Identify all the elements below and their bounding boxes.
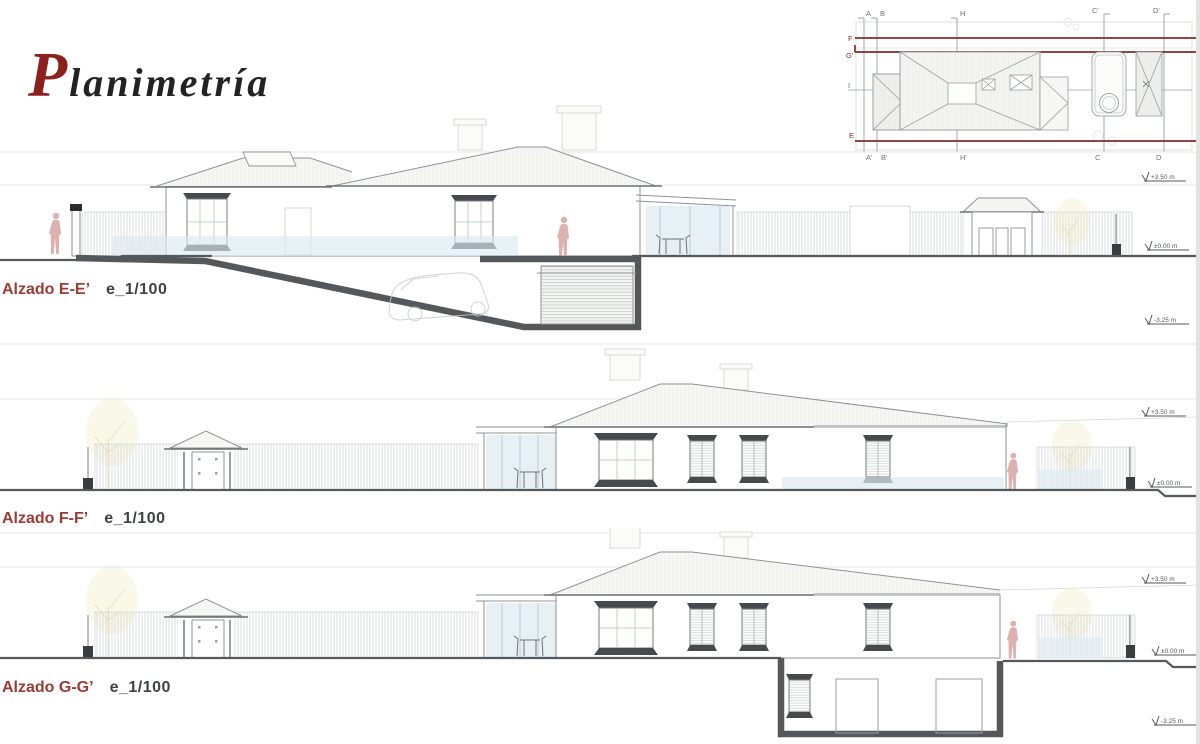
roof [544, 552, 1000, 595]
elevation-scale: e_1/100 [106, 281, 167, 298]
glass-band [112, 236, 518, 256]
car-sketch [389, 273, 489, 321]
glass-band [1038, 469, 1102, 490]
roofline-continuation [1006, 417, 1200, 422]
kp-label: I [848, 81, 850, 90]
svg-text:+3.50 m: +3.50 m [1151, 409, 1175, 416]
level-marker: ±0.00 m [1148, 478, 1192, 487]
window-shuttered [863, 603, 893, 651]
kp-label: C' [1092, 6, 1099, 15]
fence [95, 612, 478, 658]
elevation-name: Alzado F-F’ [2, 510, 88, 527]
kp-label: B [880, 9, 885, 18]
window-shuttered [739, 435, 769, 483]
window-shuttered [687, 603, 717, 651]
level-marker: +3.50 m [1142, 574, 1186, 583]
glass-band [1038, 637, 1102, 658]
kp-label: H [960, 9, 965, 18]
svg-text:+3.50 m: +3.50 m [1151, 576, 1175, 583]
basement-door [836, 679, 878, 733]
porch [636, 195, 736, 256]
plan-sheet: Planimetría [0, 0, 1200, 744]
basement-door [936, 679, 982, 733]
level-marker: ±0.00 m [1145, 241, 1189, 250]
svg-text:±0.00 m: ±0.00 m [1161, 648, 1184, 655]
roof [544, 384, 1008, 427]
svg-text:+3.50 m: +3.50 m [1151, 174, 1175, 181]
elevation-name: Alzado E-E’ [2, 281, 90, 298]
level-marker: ±0.00 m [1152, 646, 1196, 655]
person-figure [1007, 621, 1018, 659]
window-wide [594, 601, 658, 655]
basement-window [786, 674, 813, 718]
svg-text:-3.25 m: -3.25 m [1161, 718, 1183, 725]
svg-text:±0.00 m: ±0.00 m [1157, 480, 1180, 487]
window-shuttered [687, 435, 717, 483]
kp-label: A [866, 9, 871, 18]
lamp-post [83, 615, 93, 658]
garage-door [537, 266, 636, 324]
elevation-f-drawing: +3.50 m ±0.00 m [0, 338, 1200, 510]
kp-label: D' [1153, 6, 1160, 15]
person-figure [1007, 453, 1018, 491]
elevation-label-f: Alzado F-F’e_1/100 [2, 510, 166, 528]
level-marker: +3.50 m [1142, 172, 1186, 181]
window-shuttered [739, 603, 769, 651]
elevation-name: Alzado G-G’ [2, 679, 94, 696]
person-figure [49, 213, 61, 254]
window-shuttered [863, 435, 893, 483]
skylight [243, 152, 296, 166]
kp-label: F [848, 34, 853, 43]
level-marker: -3.25 m [1152, 716, 1196, 725]
elevation-e-drawing: +3.50 m ±0.00 m -3.25 m [0, 100, 1200, 335]
glass-band [782, 477, 1004, 490]
level-marker: +3.50 m [1142, 407, 1186, 416]
chimney [454, 106, 601, 150]
fence-gate [850, 206, 910, 256]
ground-line [0, 490, 1200, 496]
fence [95, 444, 478, 490]
gatehouse [960, 198, 1044, 256]
elevation-scale: e_1/100 [104, 510, 165, 527]
window-wide [594, 433, 658, 487]
kp-label: G' [846, 51, 854, 60]
elevation-label-g: Alzado G-G’e_1/100 [2, 679, 171, 697]
lamp-post [70, 204, 82, 256]
ground-line [1003, 661, 1200, 667]
level-marker: -3.25 m [1145, 315, 1189, 324]
roofline-continuation [1000, 585, 1200, 590]
elevation-g-drawing: +3.50 m ±0.00 m -3.25 m [0, 528, 1200, 744]
roof [150, 147, 662, 187]
svg-text:-3.25 m: -3.25 m [1154, 317, 1176, 324]
elevation-scale: e_1/100 [110, 679, 171, 696]
elevation-label-e: Alzado E-E’e_1/100 [2, 281, 167, 299]
title-rest: lanimetría [69, 60, 270, 105]
lamp-post [83, 447, 93, 490]
svg-text:±0.00 m: ±0.00 m [1154, 243, 1177, 250]
basement-wall [781, 658, 1000, 734]
